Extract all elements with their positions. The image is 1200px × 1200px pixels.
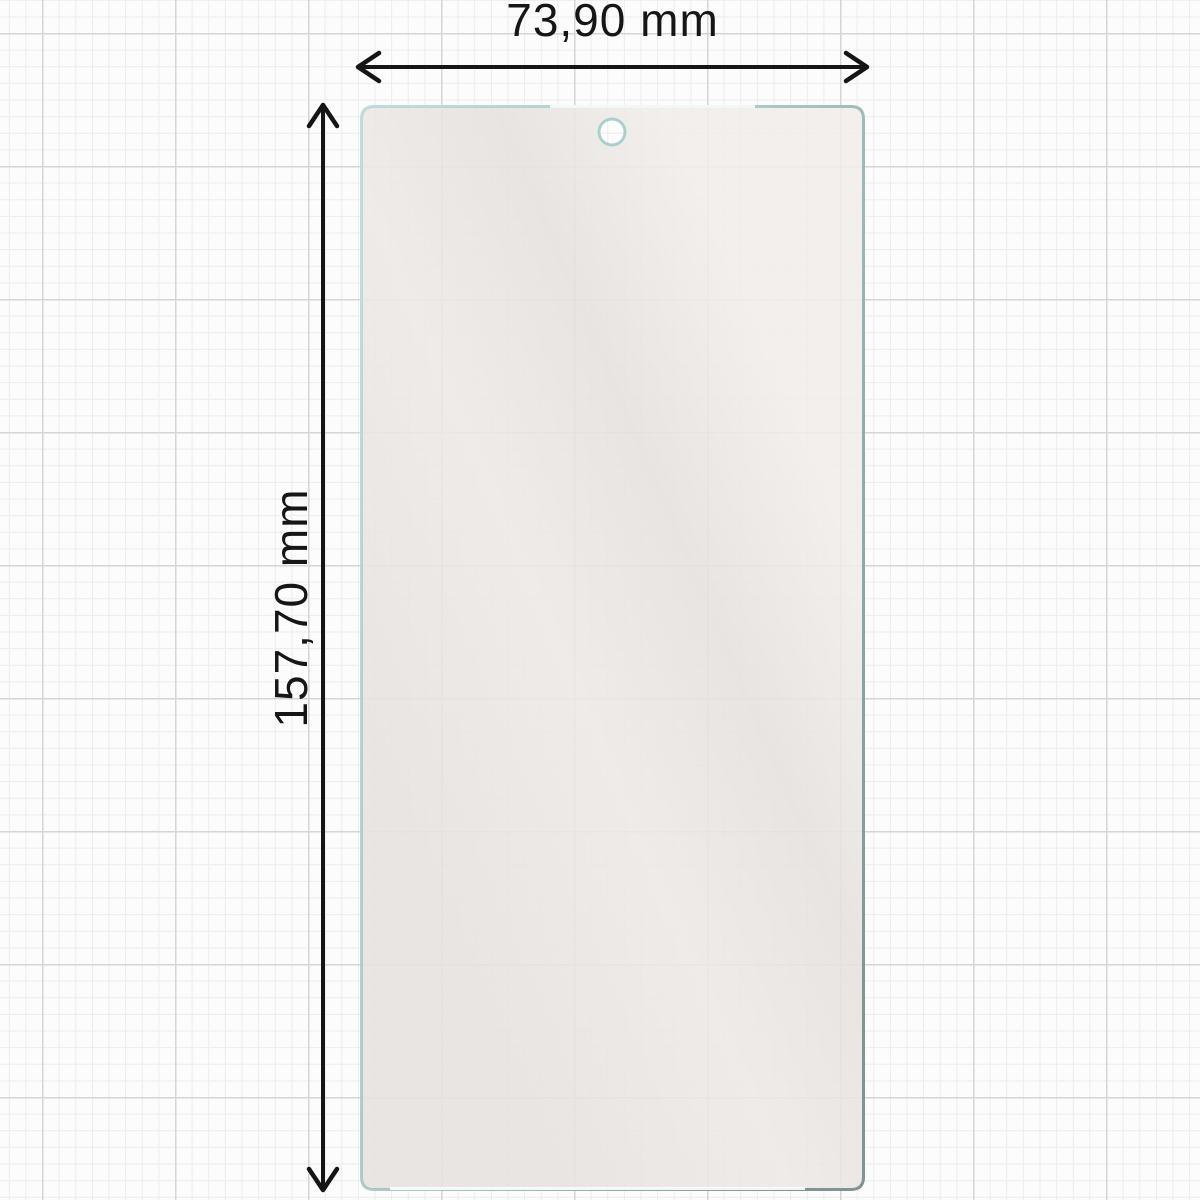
width-dimension-arrow — [353, 49, 872, 85]
glass-sheen — [360, 105, 865, 1191]
screen-protector-glass — [360, 105, 865, 1191]
dimension-diagram: 73,90 mm 157,70 mm — [0, 0, 1200, 1200]
width-dimension-label: 73,90 mm — [360, 0, 865, 47]
height-dimension-label: 157,70 mm — [264, 488, 318, 727]
camera-hole — [599, 119, 625, 145]
